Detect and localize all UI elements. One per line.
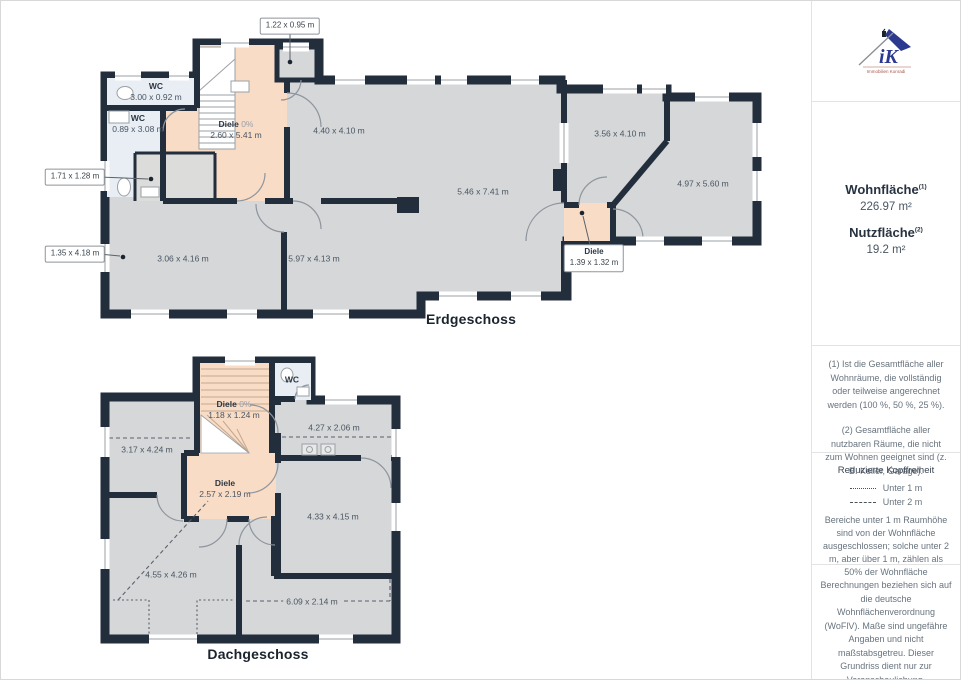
- legend-line-icon: [850, 502, 876, 503]
- room-dimension-label: 3.56 x 4.10 m: [594, 128, 646, 139]
- area-summary-section: Wohnfläche(1) 226.97 m² Nutzfläche(2) 19…: [812, 102, 960, 346]
- room-label-wc: WC: [285, 374, 299, 385]
- floor-title-erdgeschoss: Erdgeschoss: [426, 311, 516, 327]
- disclaimer-section: Berechnungen beziehen sich auf die deuts…: [812, 565, 960, 680]
- room-dimension-label: 6.09 x 2.14 m: [283, 596, 341, 607]
- footnotes-section: (1) Ist die Gesamtfläche aller Wohnräume…: [812, 346, 960, 453]
- dimension-callout: Diele1.39 x 1.32 m: [564, 244, 624, 272]
- room-dimension-label: 4.33 x 4.15 m: [307, 511, 359, 522]
- floor-plan-page: Erdgeschoss Dachgeschoss WC3.00 x 0.92 m…: [0, 0, 961, 680]
- room-dimension-label: 4.40 x 4.10 m: [313, 125, 365, 136]
- headroom-title: Reduzierte Kopffreiheit: [820, 465, 952, 476]
- room-dimension-label: 4.55 x 4.26 m: [145, 569, 197, 580]
- info-sidebar: iK Immobilien Konradi Wohnfläche(1) 226.…: [811, 1, 960, 680]
- dimension-callout: 1.35 x 4.18 m: [45, 246, 105, 263]
- room-dimension-label: 3.06 x 4.16 m: [157, 253, 209, 264]
- headroom-legend-section: Reduzierte Kopffreiheit Unter 1 mUnter 2…: [812, 453, 960, 565]
- disclaimer-text: Berechnungen beziehen sich auf die deuts…: [820, 579, 952, 680]
- room-label-wc: WC3.00 x 0.92 m: [130, 81, 182, 103]
- svg-text:iK: iK: [879, 46, 900, 68]
- agency-logo-section: iK Immobilien Konradi: [812, 1, 960, 102]
- dimension-callout: 1.22 x 0.95 m: [260, 18, 320, 35]
- plan-labels-layer: Erdgeschoss Dachgeschoss WC3.00 x 0.92 m…: [1, 1, 811, 680]
- wohnflaeche-value: 226.97 m²: [812, 201, 960, 213]
- room-dimension-label: 3.17 x 4.24 m: [121, 444, 173, 455]
- room-label-diele: Diele2.57 x 2.19 m: [199, 478, 251, 500]
- legend-line-icon: [850, 488, 876, 489]
- room-label-diele: Diele 0%1.18 x 1.24 m: [208, 399, 260, 421]
- agency-logo: iK Immobilien Konradi: [855, 25, 917, 77]
- footnote-1: (1) Ist die Gesamtfläche aller Wohnräume…: [822, 358, 950, 412]
- headroom-legend: Unter 1 mUnter 2 m: [820, 483, 952, 507]
- room-dimension-label: 4.97 x 5.60 m: [677, 178, 729, 189]
- legend-row-dashed: Unter 2 m: [820, 497, 952, 507]
- room-dimension-label: 5.46 x 7.41 m: [457, 186, 509, 197]
- room-dimension-label: 5.97 x 4.13 m: [288, 253, 340, 264]
- nutzflaeche-value: 19.2 m²: [812, 244, 960, 256]
- floor-title-dachgeschoss: Dachgeschoss: [207, 646, 308, 662]
- legend-row-dotted: Unter 1 m: [820, 483, 952, 493]
- room-label-diele: Diele 0%2.60 x 5.41 m: [210, 119, 262, 141]
- dimension-callout: 1.71 x 1.28 m: [45, 169, 105, 186]
- nutzflaeche-label: Nutzfläche(2): [812, 225, 960, 240]
- room-dimension-label: 4.27 x 2.06 m: [308, 422, 360, 433]
- wohnflaeche-label: Wohnfläche(1): [812, 182, 960, 197]
- logo-caption: Immobilien Konradi: [867, 69, 906, 74]
- room-label-wc: WC0.89 x 3.08 m: [112, 113, 164, 135]
